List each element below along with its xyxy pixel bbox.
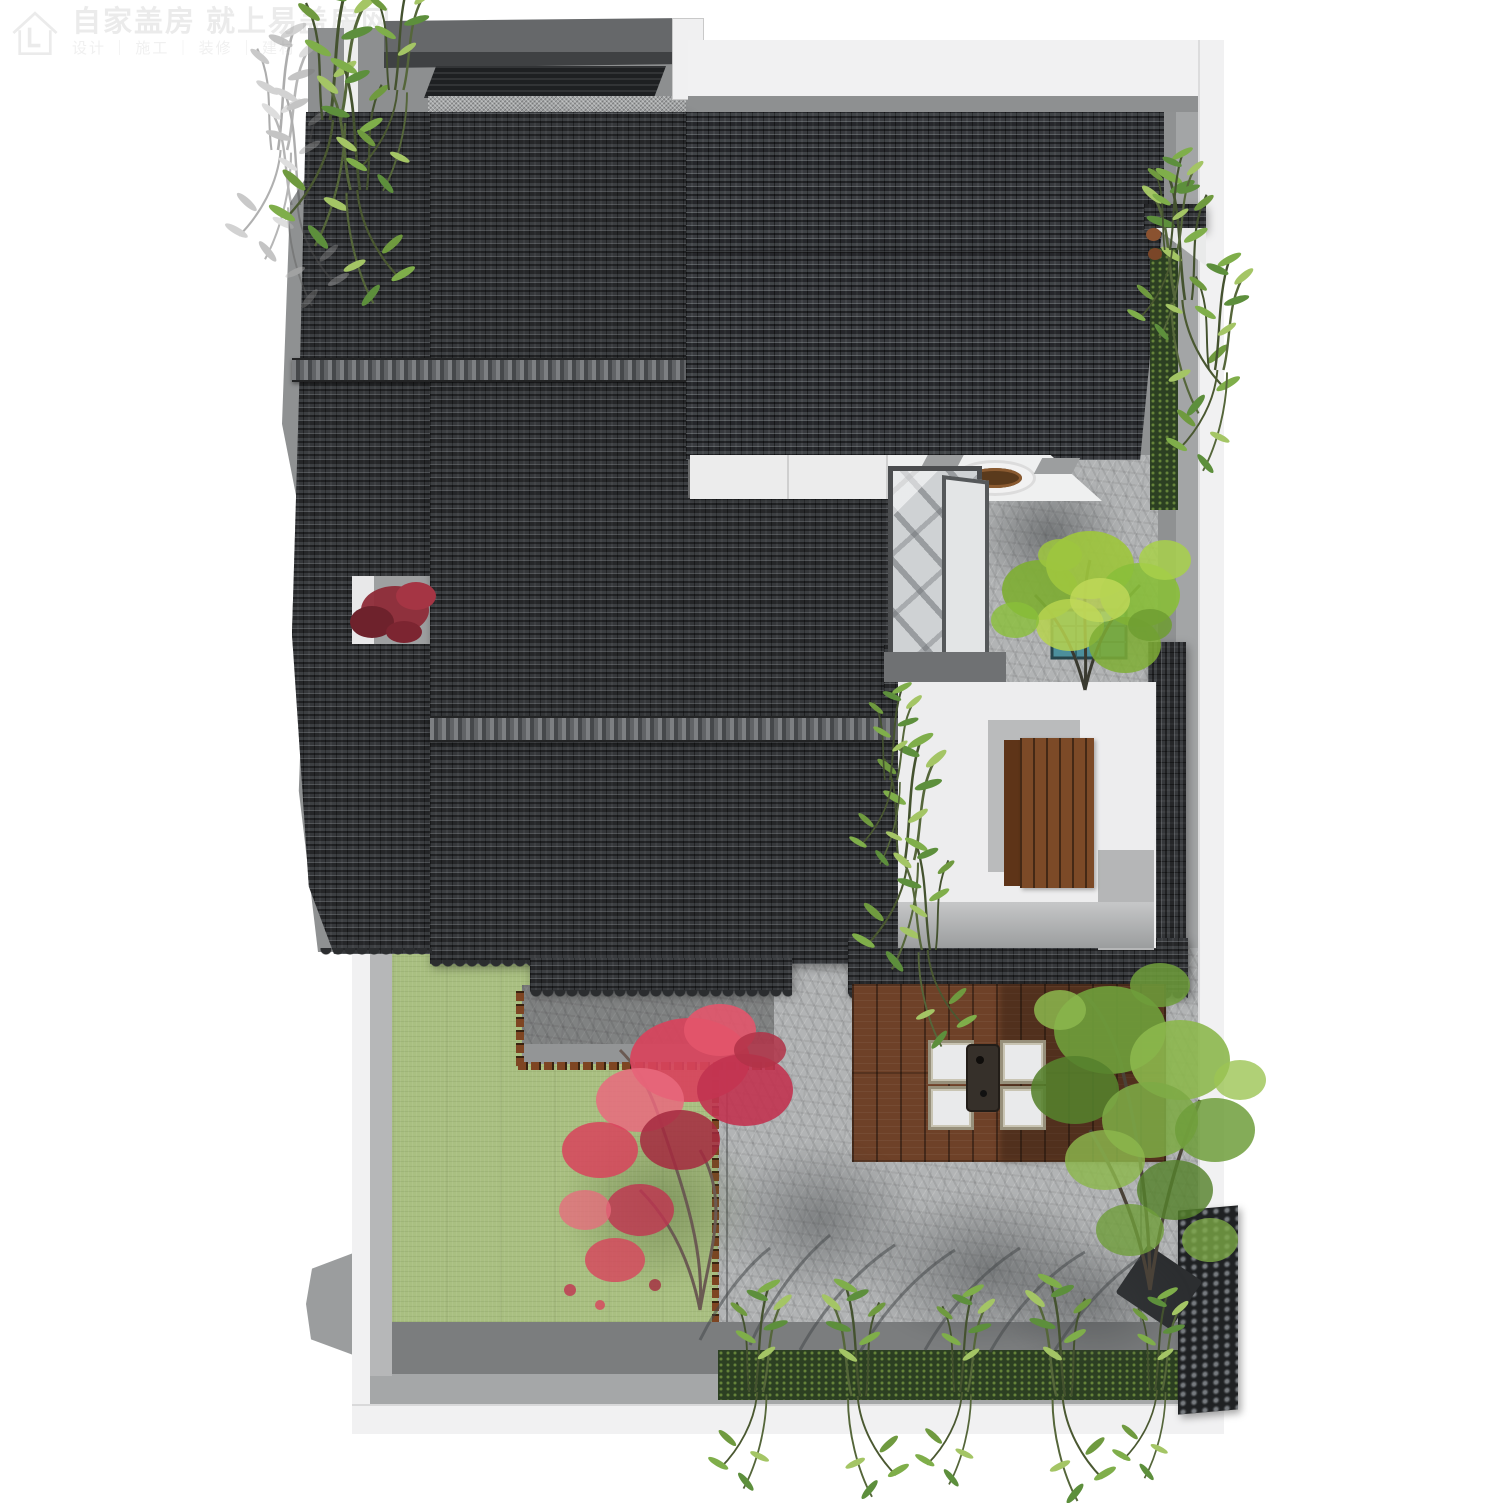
tile-edging-vertical-right bbox=[712, 1070, 719, 1324]
house-logo-icon bbox=[8, 6, 62, 60]
left-wall-bump bbox=[306, 1252, 356, 1356]
corridor-wall bbox=[690, 455, 890, 499]
entrance-canopy bbox=[1144, 204, 1206, 230]
tile-edging-vertical-left bbox=[516, 988, 524, 1066]
roof-eave-scallops bbox=[320, 948, 432, 956]
roof-ridge-main-hall bbox=[430, 716, 898, 742]
roof-eave-scallops bbox=[430, 960, 530, 968]
left-wall-grey-band bbox=[370, 946, 392, 1376]
courtyard-border-bottom bbox=[898, 902, 1154, 948]
bamboo-planter-strip bbox=[718, 1350, 1178, 1400]
terracotta-pot bbox=[1146, 228, 1161, 241]
roof-northeast-wing bbox=[686, 112, 1164, 460]
roof-eave-scallops bbox=[530, 990, 792, 998]
path-grey-border bbox=[522, 1044, 774, 1064]
gravel-band-light bbox=[428, 96, 686, 112]
glass-door-open bbox=[942, 475, 989, 681]
top-wall-white bbox=[688, 40, 1224, 98]
tile-edging-horizontal bbox=[518, 1062, 776, 1070]
left-wall-white bbox=[352, 946, 370, 1404]
long-table-bench bbox=[1004, 740, 1020, 886]
terracotta-pot bbox=[1148, 248, 1162, 260]
moss-hedge-wall bbox=[1150, 248, 1178, 510]
roof-gap-white-block bbox=[352, 576, 374, 644]
deck-table-kettle bbox=[976, 1056, 984, 1064]
glass-atrium bbox=[888, 466, 982, 672]
deck-seat bbox=[1000, 1040, 1046, 1084]
deck-table-cup bbox=[980, 1090, 987, 1097]
roof-main-hall-eave-extension bbox=[530, 958, 792, 992]
bottom-wall-white bbox=[352, 1404, 1224, 1434]
aerial-render-canvas: 自家盖房 就上易盖房网 设计 ｜ 施工 ｜ 装修 ｜ 建材 ｜ 家居 bbox=[0, 0, 1500, 1503]
flat-roof-slab bbox=[384, 18, 686, 68]
roof-northeast-slope-line bbox=[686, 250, 1156, 253]
deck-seat bbox=[1000, 1086, 1046, 1130]
slatted-canopy bbox=[424, 66, 666, 98]
long-wooden-table bbox=[1020, 738, 1094, 888]
roof-northwest-wing bbox=[430, 112, 688, 504]
stacked-tile-screen-wall bbox=[1178, 1205, 1238, 1414]
roof-ridge-northwest bbox=[292, 358, 688, 382]
roof-west-wing bbox=[292, 112, 432, 954]
top-wall-grey-band bbox=[688, 96, 1198, 112]
atrium-sill bbox=[884, 652, 1006, 682]
deck-table bbox=[966, 1044, 1000, 1112]
